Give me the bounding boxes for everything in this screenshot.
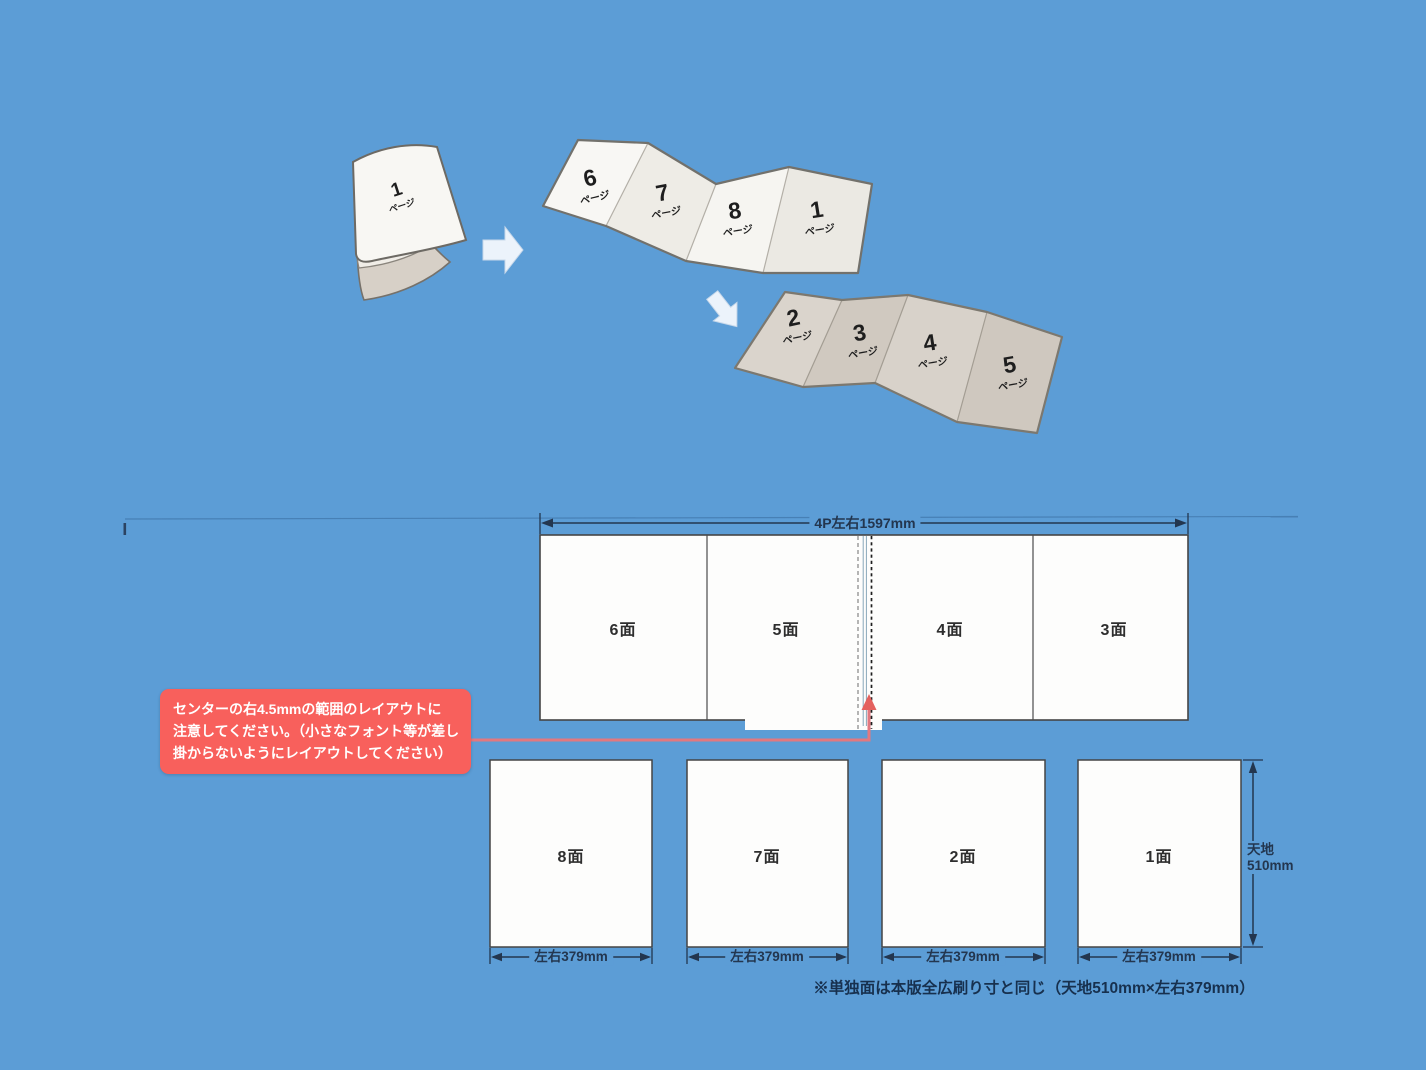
diagram-artwork (0, 0, 1426, 1070)
folded-booklet-illustration (353, 145, 466, 300)
callout-line-3: 掛からないようにレイアウトしてください） (173, 743, 461, 765)
4p-spread-diagram (540, 535, 1188, 730)
panel-label-2men: 2面 (950, 843, 977, 867)
panel-label-1men: 1面 (1146, 843, 1173, 867)
center-notch (745, 719, 882, 730)
height-label-line2: 510mm (1247, 858, 1294, 874)
pamphlet-fold-instruction-diagram: 1 ページ 6 ページ 7 ページ 8 ページ 1 ページ 2 ページ 3 ペー… (0, 0, 1426, 1070)
panel-label-4men: 4面 (937, 616, 964, 640)
panel-label-5men: 5面 (773, 616, 800, 640)
panel-label-3men: 3面 (1101, 616, 1128, 640)
width-dimension-label: 左右379mm (529, 949, 613, 965)
panel-label-6men: 6面 (610, 616, 637, 640)
warning-callout: センターの右4.5mmの範囲のレイアウトに 注意してください。（小さなフォント等… (160, 689, 471, 774)
artifact-tick (124, 523, 127, 535)
panel-label-8men: 8面 (558, 843, 585, 867)
width-dimension-label: 左右379mm (921, 949, 1005, 965)
width-dimension-label: 左右379mm (1117, 949, 1201, 965)
top-dimension-label: 4P左右1597mm (809, 515, 920, 531)
single-panel-rects (490, 760, 1241, 947)
faint-border-line (125, 517, 1298, 520)
accordion-pages-2345 (735, 292, 1062, 433)
height-dimension-label: 天地 510mm (1244, 841, 1297, 874)
callout-line-2: 注意してください。（小さなフォント等が差し (173, 721, 461, 743)
width-dimension-label: 左右379mm (725, 949, 809, 965)
panel-label-7men: 7面 (754, 843, 781, 867)
accordion-pages-6781 (543, 140, 872, 273)
arrow-down-right-icon (700, 286, 748, 336)
arrow-right-icon (483, 227, 523, 273)
callout-line-1: センターの右4.5mmの範囲のレイアウトに (173, 699, 461, 721)
footnote: ※単独面は本版全広刷り寸と同じ（天地510mm×左右379mm） (813, 976, 1254, 998)
height-label-line1: 天地 (1247, 842, 1294, 858)
